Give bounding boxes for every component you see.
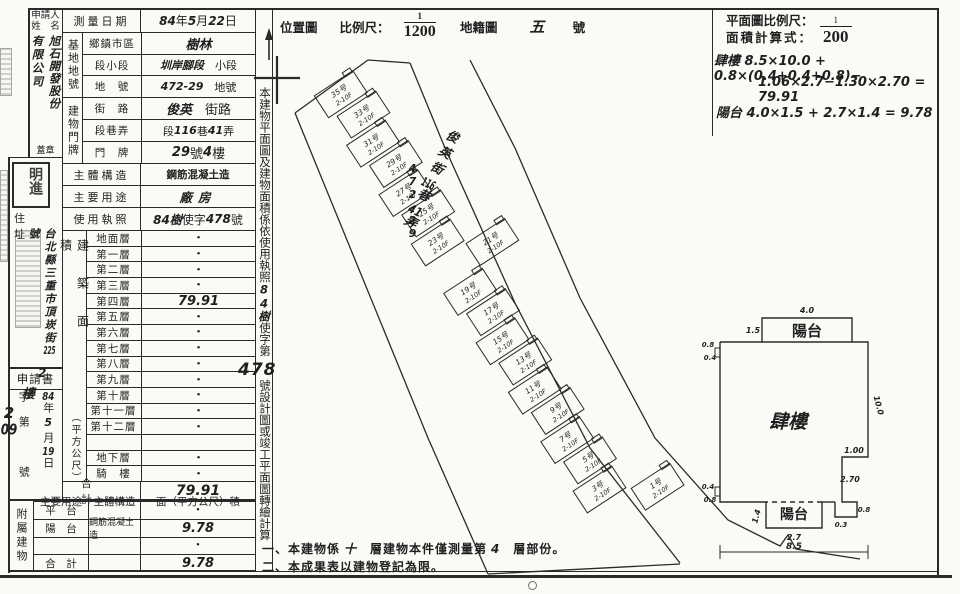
structure-value: 鋼筋混凝土造 — [141, 164, 255, 185]
plan-header: 平面圖比例尺： 面積計算式： 1 200 — [726, 13, 852, 47]
floor-label: 第五層 — [86, 309, 142, 324]
plan-scale-numerator: 1 — [820, 16, 853, 27]
text-segment: 472-29 — [161, 80, 204, 93]
site-row: 鄉鎮市區 樹林 — [83, 33, 255, 54]
applicant-label-line1: 申請人 — [29, 11, 62, 22]
text-segment: 日 — [225, 12, 237, 29]
text-segment: 月 — [196, 12, 208, 29]
text-segment: 日 — [42, 457, 54, 471]
floor-area-row: 第十一層• — [86, 403, 255, 419]
door-row-label: 街 路 — [83, 98, 142, 119]
dim-notch-b: 0.8 — [858, 506, 871, 514]
floor-label: 地下層 — [86, 451, 142, 466]
floor-area-row: 地面層• — [86, 231, 255, 246]
dim-jog-top-b: 0.4 — [704, 354, 717, 362]
dim-jog-top-a: 0.8 — [702, 341, 715, 349]
site-row: 地 號 472-29 地號 — [83, 75, 255, 97]
plan-scale-fraction: 1 200 — [820, 16, 853, 45]
usage-row: 主要用途 廠房 — [62, 185, 256, 208]
application-floor-note-char: 樓 — [22, 383, 35, 402]
text-segment: 層建物本件僅測量第 — [357, 542, 491, 556]
applicant-name-left: 有限公司 — [30, 35, 46, 110]
floor-area-row: 第四層79.91 — [86, 293, 255, 309]
floor-label: 第六層 — [86, 325, 142, 340]
door-row-label: 段巷弄 — [83, 120, 142, 141]
text-segment: 4 — [491, 542, 500, 556]
seal-caption: 蓋章 — [29, 143, 62, 156]
text-segment: 層部份。 — [500, 542, 565, 556]
annex-row: 合 計9.78 — [34, 554, 255, 572]
annex-structure: 鋼筋混凝土造 — [89, 520, 141, 537]
structure-label: 主體構造 — [63, 164, 141, 185]
dim-right-height: 10.0 — [872, 395, 886, 417]
floor-label: 第十層 — [86, 388, 142, 403]
floor-area-row: 第七層• — [86, 340, 255, 356]
license-label: 使用執照 — [63, 208, 141, 230]
floor-label: 第九層 — [86, 372, 142, 387]
north-arrow — [265, 28, 273, 60]
text-segment: 樹林 — [185, 34, 211, 53]
floor-label — [86, 435, 142, 450]
plan-scale-label: 平面圖比例尺： — [726, 13, 814, 30]
balcony-bottom-label: 陽台 — [780, 506, 808, 523]
plan-calc-label: 面積計算式： — [726, 30, 814, 47]
right-panel-divider — [712, 8, 713, 136]
floor-label: 第八層 — [86, 357, 142, 372]
dim-step-height: 2.70 — [840, 475, 860, 484]
floor-area-row: 第六層• — [86, 324, 255, 340]
floor-area-value: • — [142, 325, 255, 340]
annex-use: 合 計 — [34, 555, 89, 572]
text-segment: 5 — [188, 14, 196, 28]
door-row: 街 路 俊英 街路 — [83, 98, 255, 119]
floor-rows: 地面層•第一層•第二層•第三層•第四層79.91第五層•第六層•第七層•第八層•… — [86, 231, 255, 481]
door-row-value: 29號 4樓 — [142, 142, 255, 163]
floor-area-row: 第八層• — [86, 356, 255, 372]
survey-date-label: 測量日期 — [63, 9, 141, 32]
seal-box: 明進 — [12, 162, 50, 208]
scan-artifact — [0, 170, 8, 262]
text-segment: 41 — [208, 124, 223, 137]
door-row: 門 牌 29號 4樓 — [83, 141, 255, 163]
scan-artifact — [528, 581, 537, 590]
text-segment: 478 — [206, 212, 231, 226]
text-segment: 19 — [42, 446, 55, 457]
annex-structure — [89, 555, 141, 572]
floor-area-value — [142, 435, 255, 450]
floor-label: 第十一層 — [86, 404, 142, 419]
floor-area-row — [86, 434, 255, 450]
annex-area: • — [141, 538, 255, 555]
site-row-value: 圳岸腳段 小段 — [142, 55, 255, 76]
dim-bot-balcony-width: 2.7 — [787, 533, 802, 542]
scan-artifact — [0, 48, 12, 96]
text-segment: 84 — [159, 14, 176, 28]
plan-scale-denominator: 200 — [823, 27, 849, 45]
text-segment: 弄 — [223, 123, 234, 139]
structure-row: 主體構造 鋼筋混凝土造 — [62, 163, 256, 186]
site-row: 段小段 圳岸腳段 小段 — [83, 54, 255, 76]
map-crosshair — [254, 56, 300, 104]
text-segment: 29 — [172, 145, 190, 160]
dim-notch-a: 0.3 — [835, 521, 848, 529]
floor-label: 第三層 — [86, 278, 142, 293]
note-line-1: 一、本建物係 十 層建物本件僅測量第 4 層部份。 — [262, 540, 565, 557]
text-segment: 年 — [42, 402, 54, 416]
text-segment: 樓 — [212, 143, 225, 162]
text-segment: 號 — [231, 211, 243, 228]
floor-area-table: 建築面積 （平方公尺） 地面層•第一層•第二層•第三層•第四層79.91第五層•… — [62, 230, 256, 482]
text-segment: 225 — [43, 345, 56, 356]
floor-area-group-unit: （平方公尺） — [67, 412, 82, 481]
door-group-label: 建物門牌 — [63, 98, 83, 163]
seal-stamp-text: 明進 — [24, 167, 44, 195]
floor-area-value: • — [142, 231, 255, 246]
floor-area-value: • — [142, 309, 255, 324]
text-segment: 4 — [203, 145, 212, 160]
text-segment: 116 — [174, 124, 197, 137]
application-number: 209 — [0, 404, 18, 437]
door-group: 建物門牌 街 路 俊英 街路 段巷弄 段116巷41弄 門 牌 29號 4樓 — [62, 97, 256, 164]
floor-label: 第七層 — [86, 341, 142, 356]
annex-area: 9.78 — [141, 520, 255, 537]
site-group-label: 基地地號 — [63, 33, 83, 97]
license-row: 使用執照 84樹使字478號 — [62, 207, 256, 231]
seal-stamp-overlay — [15, 230, 41, 328]
parcel-building: 1号2-10F — [629, 460, 684, 510]
text-segment: 22 — [208, 14, 225, 28]
annex-use — [34, 538, 89, 555]
dim-top-width: 4.0 — [799, 306, 815, 315]
text-segment: 月 — [42, 432, 54, 446]
area-formula-line3: 陽台 4.0×1.5 + 2.7×1.4 = 9.78 — [716, 102, 932, 121]
floor-plan-drawing: 陽台 肆樓 陽台 4.0 1.5 10.0 1.00 2.70 2.7 1.4 … — [690, 300, 940, 580]
application-floor-note-digit: 2 — [38, 366, 46, 380]
dim-jog-bot-b: 0.8 — [704, 496, 717, 504]
survey-date-row: 測量日期 84年5月22日 — [62, 8, 256, 33]
text-segment — [17, 441, 29, 466]
usage-value: 廠房 — [141, 186, 255, 207]
floor-area-row: 地下層• — [86, 450, 255, 466]
floor-area-value: • — [142, 404, 255, 419]
site-row-label: 段小段 — [83, 55, 142, 76]
annex-row: 陽 台鋼筋混凝土造9.78 — [34, 519, 255, 537]
annex-group-label: 附屬建物 — [9, 501, 34, 570]
usage-label: 主要用途 — [63, 186, 141, 207]
door-row-value: 段116巷41弄 — [142, 120, 255, 141]
floor-label: 第二層 — [86, 262, 142, 277]
area-formula-line2: 1.06×2.7−1.30×2.70 = 79.91 — [758, 75, 960, 105]
floor-label: 第十二層 — [86, 419, 142, 434]
text-segment: 頂崁街 — [43, 306, 56, 345]
floor-area-row: 第五層• — [86, 308, 255, 324]
application-date: 84年5月19日 — [40, 391, 56, 491]
application-title: 申請書 — [9, 371, 62, 390]
license-value: 84樹使字478號 — [141, 208, 255, 230]
annex-structure — [89, 538, 141, 555]
scanned-survey-form: 申請人 姓 名 旭石開發股份 有限公司 蓋章 測量日期 84年5月22日 基地地… — [0, 0, 960, 594]
text-segment: 號 — [190, 143, 203, 162]
text-segment: 段 — [163, 123, 174, 139]
floor-area-value: • — [142, 451, 255, 466]
floor-area-row: 第九層• — [86, 371, 255, 387]
text-segment: 巷 — [197, 123, 208, 139]
address-box: 明進 住 址 台北縣三重市頂崁街225號 — [8, 157, 63, 368]
floor-area-value: • — [142, 262, 255, 277]
floor-area-value: • — [142, 466, 255, 481]
text-segment: 圳岸腳段 — [160, 57, 204, 73]
text-segment: 台北縣三重市 — [43, 228, 56, 306]
applicant-label-line2: 姓 名 — [29, 22, 62, 33]
text-segment: 俊英 — [166, 99, 192, 118]
annex-area: 9.78 — [141, 555, 255, 572]
floor-area-value: • — [142, 247, 255, 262]
site-row-value: 472-29 地號 — [142, 76, 255, 97]
annex-rows: 平 台•陽 台鋼筋混凝土造9.78•合 計9.78 — [34, 501, 255, 572]
annex-area: • — [141, 502, 255, 519]
floor-area-row: 第三層• — [86, 277, 255, 293]
annex-row: 平 台• — [34, 501, 255, 519]
dim-jog-bot-a: 0.4 — [702, 483, 715, 491]
text-segment: 地號 — [203, 79, 236, 95]
floor-area-value: • — [142, 278, 255, 293]
door-row: 段巷弄 段116巷41弄 — [83, 119, 255, 141]
floor-label: 地面層 — [86, 231, 142, 246]
site-row-value: 樹林 — [142, 33, 255, 54]
annex-section: 附屬建物 主要用途 主體構造 面（平方公尺）積 平 台•陽 台鋼筋混凝土造9.7… — [8, 500, 256, 571]
dim-overall-width: 8.5 — [786, 542, 802, 552]
applicant-name-right: 旭石開發股份 — [47, 35, 63, 110]
floor-area-value: • — [142, 388, 255, 403]
floor-area-row: 第二層• — [86, 261, 255, 277]
survey-date-value: 84年5月22日 — [141, 9, 255, 32]
door-row-value: 俊英 街路 — [142, 98, 255, 119]
text-segment: 年 — [176, 12, 188, 29]
dim-step-width: 1.00 — [844, 446, 864, 455]
floor-area-row: 第十層• — [86, 387, 255, 403]
site-group: 基地地號 鄉鎮市區 樹林 段小段 圳岸腳段 小段 地 號 472-29 地號 — [62, 32, 256, 98]
dim-bot-balcony-depth: 1.4 — [750, 508, 762, 524]
text-segment: 十 — [344, 542, 357, 556]
dim-top-depth: 1.5 — [746, 326, 761, 335]
text-segment: 84 — [42, 391, 55, 402]
floor-label: 第四層 — [86, 294, 142, 309]
floor-area-value: 79.91 — [142, 294, 255, 309]
door-row-label: 門 牌 — [83, 142, 142, 163]
room-label: 肆樓 — [769, 411, 810, 433]
balcony-top-label: 陽台 — [792, 322, 822, 340]
site-row-label: 地 號 — [83, 76, 142, 97]
floor-area-value: • — [142, 419, 255, 434]
floor-area-row: 第十二層• — [86, 418, 255, 434]
text-segment: 街路 — [192, 99, 231, 118]
text-segment: 使字 — [182, 211, 206, 228]
applicant-box: 申請人 姓 名 旭石開發股份 有限公司 蓋章 — [28, 8, 63, 158]
text-segment: 09 — [0, 422, 18, 437]
floor-area-value: • — [142, 341, 255, 356]
text-segment: 號 — [17, 466, 29, 491]
text-segment: 84樹 — [153, 211, 182, 228]
floor-label: 第一層 — [86, 247, 142, 262]
parcel-building: 21号2-10F — [464, 215, 519, 265]
text-segment: 一、本建物係 — [262, 542, 344, 556]
text-segment: 小段 — [204, 57, 237, 73]
text-segment: 5 — [42, 416, 55, 432]
annex-use: 陽 台 — [34, 520, 89, 537]
annex-use: 平 台 — [34, 502, 89, 519]
site-row-label: 鄉鎮市區 — [83, 33, 142, 54]
annex-row: • — [34, 537, 255, 555]
note-line-2: 二、本成果表以建物登記為限。 — [262, 558, 444, 575]
text-segment: 2 — [0, 404, 18, 422]
floor-area-row: 第一層• — [86, 246, 255, 262]
